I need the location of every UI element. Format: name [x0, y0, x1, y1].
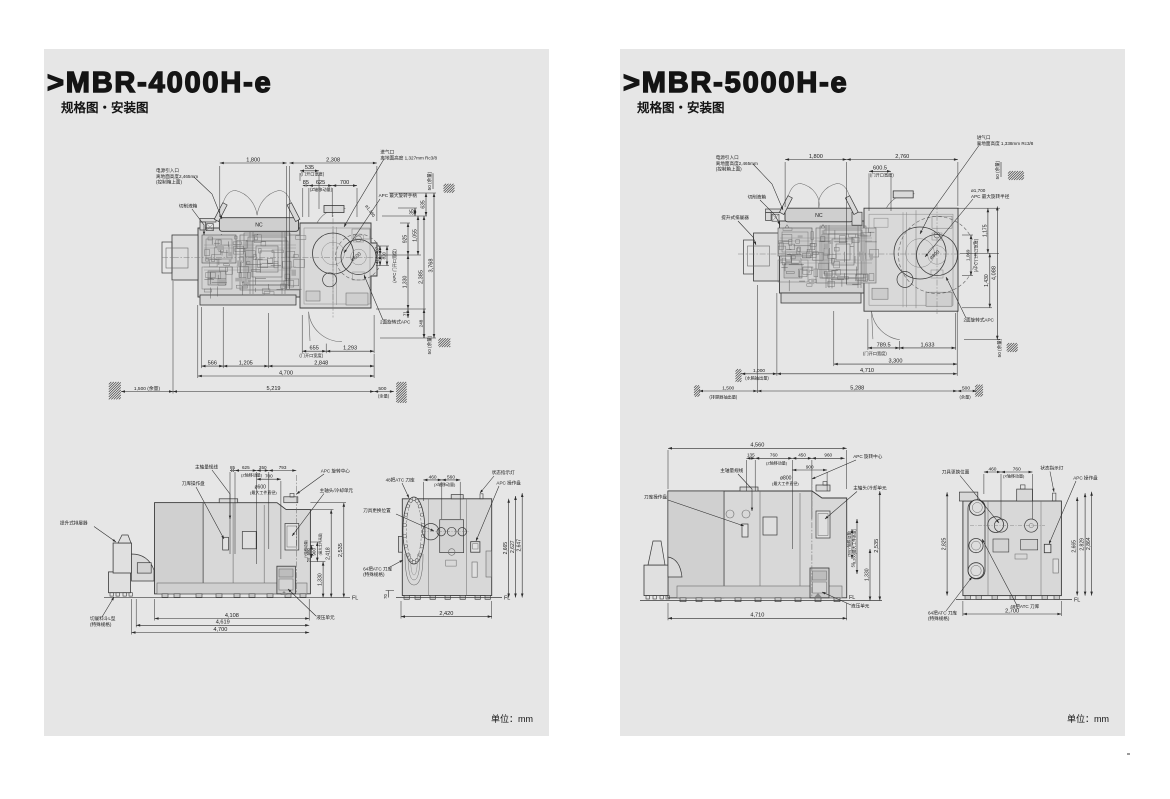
svg-text:700: 700 [265, 474, 273, 479]
svg-text:5,219: 5,219 [267, 386, 281, 392]
svg-text:刀库操作盘: 刀库操作盘 [644, 493, 667, 500]
svg-text:(特殊规格): (特殊规格) [90, 621, 112, 628]
svg-text:液压单元: 液压单元 [316, 614, 335, 621]
svg-text:700: 700 [340, 180, 349, 186]
svg-text:1,205: 1,205 [239, 361, 253, 367]
svg-text:925: 925 [402, 235, 408, 244]
svg-text:35: 35 [409, 209, 415, 215]
svg-text:760(Y轴移动量): 760(Y轴移动量) [846, 530, 851, 557]
svg-text:1,293: 1,293 [343, 346, 357, 352]
svg-text:(控制箱上面): (控制箱上面) [156, 179, 182, 186]
svg-text:820: 820 [381, 252, 386, 260]
svg-text:566: 566 [208, 361, 217, 367]
svg-text:(Z轴移动量): (Z轴移动量) [766, 460, 788, 466]
svg-text:50 (余量): 50 (余量) [426, 335, 433, 354]
svg-text:APC 操作盘: APC 操作盘 [1073, 474, 1098, 481]
svg-text:2,700: 2,700 [1005, 608, 1019, 614]
svg-text:1,055: 1,055 [412, 229, 418, 242]
svg-text:4,560: 4,560 [750, 443, 764, 449]
svg-text:1,500 (余量): 1,500 (余量) [134, 385, 161, 392]
svg-text:离地面高度 1,327mm Rc3/8: 离地面高度 1,327mm Rc3/8 [380, 154, 437, 161]
svg-text:460: 460 [429, 474, 437, 480]
svg-text:793: 793 [279, 465, 287, 470]
svg-text:2,627: 2,627 [510, 540, 516, 553]
svg-text:(最大工件高度): (最大工件高度) [317, 533, 322, 556]
svg-text:4,700: 4,700 [213, 627, 227, 633]
svg-text:2,829: 2,829 [1080, 538, 1086, 551]
svg-text:2,760: 2,760 [895, 154, 909, 160]
svg-text:4,700: 4,700 [279, 370, 293, 376]
svg-text:(最大工件直径): (最大工件直径) [772, 480, 799, 486]
svg-text:刀具更换位置: 刀具更换位置 [363, 507, 391, 514]
svg-text:50 (余量): 50 (余量) [994, 160, 1001, 179]
svg-text:4,108: 4,108 [225, 613, 239, 619]
svg-text:900: 900 [806, 464, 814, 469]
svg-text:85: 85 [303, 180, 309, 186]
svg-text:407: 407 [374, 246, 379, 254]
svg-text:635: 635 [420, 200, 426, 209]
svg-text:(特殊规格): (特殊规格) [363, 571, 385, 578]
svg-text:789.5: 789.5 [877, 342, 891, 348]
svg-text:APC 旋转中心: APC 旋转中心 [853, 453, 883, 460]
svg-text:1,069: 1,069 [965, 249, 970, 261]
svg-text:液压单元: 液压单元 [851, 602, 870, 609]
svg-text:4,619: 4,619 [216, 620, 230, 626]
svg-text:APC 最大旋转手柄: APC 最大旋转手柄 [379, 192, 418, 199]
svg-text:FL: FL [504, 596, 510, 602]
svg-text:1,330: 1,330 [864, 568, 870, 581]
svg-text:NC: NC [255, 223, 263, 229]
svg-text:离地面高度 1,338mm Rc3/8: 离地面高度 1,338mm Rc3/8 [977, 140, 1034, 147]
svg-text:刀库操作盘: 刀库操作盘 [182, 480, 205, 487]
svg-text:提升式排屡器: 提升式排屡器 [721, 214, 749, 221]
svg-text:(门开口宽度): (门开口宽度) [301, 171, 325, 178]
svg-text:625: 625 [242, 465, 250, 470]
svg-text:70: 70 [383, 594, 388, 599]
svg-text:135: 135 [747, 453, 755, 458]
svg-text:(余量): (余量) [960, 394, 972, 401]
svg-text:2,418: 2,418 [326, 547, 332, 560]
svg-text:FL: FL [1074, 598, 1080, 604]
svg-text:APC 最大旋转半径: APC 最大旋转半径 [971, 193, 1010, 200]
svg-text:535: 535 [305, 165, 314, 171]
svg-text:主轴头/冷却单元: 主轴头/冷却单元 [853, 485, 887, 492]
svg-text:(门开口宽度): (门开口宽度) [299, 352, 323, 359]
svg-text:主轴头/冷却单元: 主轴头/冷却单元 [320, 487, 354, 494]
svg-text:FL: FL [352, 595, 358, 601]
svg-text:提升式排屡器: 提升式排屡器 [60, 520, 88, 527]
svg-text:ø1,700: ø1,700 [971, 188, 986, 193]
svg-text:2,665: 2,665 [1072, 540, 1078, 553]
svg-text:50 (余量): 50 (余量) [996, 338, 1003, 357]
svg-text:切削液箱: 切削液箱 [748, 194, 767, 201]
svg-text:2,825: 2,825 [942, 537, 948, 550]
svg-text:1,175: 1,175 [982, 224, 988, 237]
svg-text:(门开口宽度): (门开口宽度) [863, 350, 887, 357]
svg-text:1,800: 1,800 [809, 154, 823, 160]
svg-text:625: 625 [316, 180, 325, 186]
svg-text:500: 500 [962, 385, 970, 391]
svg-text:500: 500 [378, 386, 386, 392]
svg-text:2,864: 2,864 [1086, 537, 1092, 550]
svg-text:2,535: 2,535 [338, 543, 344, 557]
svg-text:刀具更换位置: 刀具更换位置 [942, 469, 970, 476]
svg-text:(Z轴移动量): (Z轴移动量) [241, 472, 263, 478]
svg-text:1,000: 1,000 [753, 368, 765, 374]
svg-text:状态指示灯: 状态指示灯 [492, 469, 515, 476]
svg-text:2,647: 2,647 [517, 539, 523, 552]
svg-text:350: 350 [259, 465, 267, 470]
svg-text:切削液箱: 切削液箱 [179, 202, 198, 209]
svg-text:3,768: 3,768 [428, 259, 434, 273]
svg-text:(Z轴移动量): (Z轴移动量) [310, 186, 333, 193]
svg-text:(门开口宽度): (门开口宽度) [870, 171, 894, 178]
svg-text:APC 旋转中心: APC 旋转中心 [321, 468, 351, 475]
svg-text:413: 413 [374, 256, 379, 264]
svg-text:1,430: 1,430 [984, 274, 990, 287]
svg-text:85: 85 [230, 465, 236, 470]
svg-text:2,535: 2,535 [874, 539, 880, 553]
svg-text:NC: NC [815, 213, 823, 219]
svg-text:4,088: 4,088 [992, 266, 998, 280]
svg-text:655: 655 [310, 346, 319, 352]
svg-text:48把ATC 刀库: 48把ATC 刀库 [386, 476, 415, 483]
svg-text:5,288: 5,288 [850, 385, 864, 391]
svg-text:2,308: 2,308 [326, 157, 340, 163]
svg-text:4,710: 4,710 [750, 613, 764, 619]
svg-text:2,848: 2,848 [314, 361, 328, 367]
svg-text:2面旋转式APC: 2面旋转式APC [964, 316, 995, 323]
svg-text:760: 760 [1013, 466, 1021, 472]
svg-text:APC 操作盘: APC 操作盘 [496, 480, 521, 487]
svg-text:(余量): (余量) [378, 393, 390, 400]
svg-text:1,500: 1,500 [722, 385, 734, 391]
svg-text:960: 960 [824, 453, 832, 458]
svg-text:760: 760 [770, 453, 778, 458]
svg-text:主轴量规线: 主轴量规线 [195, 464, 218, 471]
svg-text:(APC 门开口宽度): (APC 门开口宽度) [973, 238, 980, 272]
svg-text:71: 71 [402, 311, 407, 317]
svg-text:(Y轴移动量): (Y轴移动量) [303, 540, 308, 558]
svg-text:2,385: 2,385 [418, 270, 424, 284]
svg-text:1,330: 1,330 [402, 276, 408, 289]
svg-text:2,665: 2,665 [503, 542, 509, 555]
svg-text:50: 50 [851, 562, 856, 567]
svg-text:(控制箱上面): (控制箱上面) [716, 166, 742, 173]
svg-text:ø1,380: ø1,380 [364, 204, 376, 219]
svg-text:50 (余量): 50 (余量) [426, 171, 433, 190]
svg-text:(排屡器抽出量): (排屡器抽出量) [709, 394, 738, 401]
svg-text:主轴量规线: 主轴量规线 [720, 467, 743, 474]
svg-text:1,800: 1,800 [246, 157, 260, 163]
svg-text:(APC 门开口宽度): (APC 门开口宽度) [391, 249, 398, 283]
svg-text:1,330: 1,330 [318, 573, 324, 586]
svg-text:(最大工件直径): (最大工件直径) [250, 489, 277, 495]
svg-text:4,710: 4,710 [860, 368, 874, 374]
svg-text:2面旋转式APC: 2面旋转式APC [380, 319, 411, 326]
svg-text:(X轴移动量): (X轴移动量) [1003, 473, 1025, 479]
svg-text:2,420: 2,420 [439, 611, 453, 617]
svg-text:(特殊规格): (特殊规格) [928, 615, 950, 622]
svg-text:(X轴移动量): (X轴移动量) [434, 481, 456, 487]
svg-text:FL: FL [849, 595, 855, 601]
svg-text:460: 460 [988, 466, 996, 472]
svg-text:600.5: 600.5 [873, 166, 887, 172]
svg-text:3,300: 3,300 [889, 359, 903, 365]
svg-text:48把ATC 刀库: 48把ATC 刀库 [1010, 603, 1039, 610]
svg-text:450: 450 [798, 453, 806, 458]
svg-text:状态指示灯: 状态指示灯 [1040, 465, 1063, 472]
svg-text:560: 560 [447, 474, 455, 480]
svg-text:248: 248 [418, 319, 423, 327]
svg-text:1,633: 1,633 [921, 342, 935, 348]
